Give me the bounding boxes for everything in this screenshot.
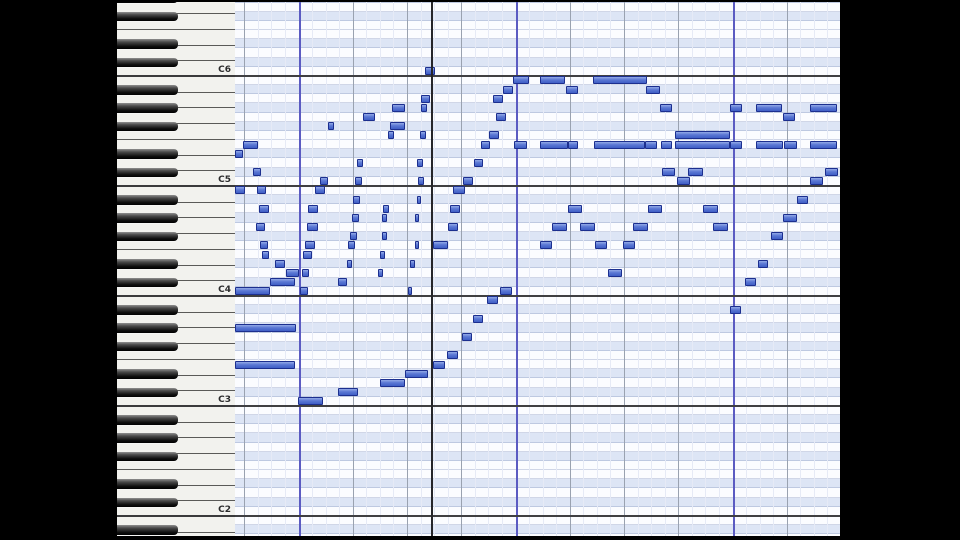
midi-note[interactable] — [675, 141, 730, 149]
midi-note[interactable] — [421, 95, 430, 103]
midi-note[interactable] — [417, 159, 423, 167]
midi-note[interactable] — [453, 186, 465, 194]
midi-note[interactable] — [810, 104, 837, 112]
midi-note[interactable] — [660, 104, 672, 112]
midi-note[interactable] — [338, 278, 347, 286]
midi-note[interactable] — [350, 232, 357, 240]
note-grid[interactable] — [235, 0, 840, 540]
octave-line — [235, 185, 840, 187]
bottom-edge — [0, 536, 960, 540]
midi-note[interactable] — [514, 141, 527, 149]
octave-label: C5 — [218, 176, 231, 185]
midi-note[interactable] — [235, 150, 243, 158]
midi-note[interactable] — [513, 76, 529, 84]
subbeat-line — [475, 0, 476, 540]
midi-note[interactable] — [382, 232, 387, 240]
subbeat-line — [773, 0, 774, 540]
subbeat-line — [760, 0, 761, 540]
midi-note[interactable] — [730, 141, 742, 149]
black-key[interactable] — [117, 278, 178, 288]
midi-note[interactable] — [300, 287, 308, 295]
midi-note[interactable] — [487, 296, 498, 304]
midi-note[interactable] — [645, 141, 657, 149]
black-key[interactable] — [117, 58, 178, 68]
midi-note[interactable] — [308, 205, 318, 213]
midi-note[interactable] — [338, 388, 358, 396]
midi-note[interactable] — [303, 251, 312, 259]
midi-note[interactable] — [730, 306, 741, 314]
midi-note[interactable] — [298, 397, 323, 405]
midi-note[interactable] — [275, 260, 285, 268]
midi-note[interactable] — [783, 214, 797, 222]
midi-note[interactable] — [703, 205, 718, 213]
midi-note[interactable] — [797, 196, 808, 204]
midi-note[interactable] — [474, 159, 483, 167]
subbeat-line — [827, 0, 828, 540]
midi-note[interactable] — [418, 177, 424, 185]
black-key[interactable] — [117, 122, 178, 132]
piano-roll-editor: C6C5C4C3C2 — [0, 0, 960, 540]
midi-note[interactable] — [566, 86, 578, 94]
midi-note[interactable] — [503, 86, 513, 94]
midi-note[interactable] — [463, 177, 473, 185]
subbeat-line — [719, 0, 720, 540]
midi-note[interactable] — [305, 241, 315, 249]
midi-note[interactable] — [320, 177, 328, 185]
midi-note[interactable] — [421, 104, 427, 112]
subbeat-line — [448, 0, 449, 540]
white-key-separator — [117, 515, 235, 517]
black-key[interactable] — [117, 213, 178, 223]
beat-line — [461, 0, 462, 540]
black-key[interactable] — [117, 305, 178, 315]
midi-note[interactable] — [580, 223, 595, 231]
black-key[interactable] — [117, 388, 178, 398]
midi-note[interactable] — [302, 269, 309, 277]
midi-note[interactable] — [594, 141, 645, 149]
midi-note[interactable] — [433, 361, 445, 369]
midi-note[interactable] — [810, 177, 823, 185]
midi-note[interactable] — [347, 260, 352, 268]
midi-note[interactable] — [756, 104, 782, 112]
subbeat-line — [258, 0, 259, 540]
midi-note[interactable] — [243, 141, 258, 149]
midi-note[interactable] — [540, 76, 565, 84]
white-key-separator — [117, 185, 235, 187]
midi-note[interactable] — [608, 269, 622, 277]
midi-note[interactable] — [661, 141, 672, 149]
white-key-separator — [117, 469, 235, 470]
midi-note[interactable] — [259, 205, 269, 213]
black-key[interactable] — [117, 103, 178, 113]
octave-label: C3 — [218, 396, 231, 405]
midi-note[interactable] — [405, 370, 428, 378]
midi-note[interactable] — [408, 287, 412, 295]
midi-note[interactable] — [646, 86, 660, 94]
midi-note[interactable] — [286, 269, 299, 277]
octave-line — [235, 295, 840, 297]
black-key[interactable] — [117, 498, 178, 508]
black-key[interactable] — [117, 259, 178, 269]
beat-line — [787, 0, 788, 540]
midi-note[interactable] — [493, 95, 503, 103]
midi-note[interactable] — [415, 214, 419, 222]
black-key[interactable] — [117, 342, 178, 352]
subbeat-line — [651, 0, 652, 540]
subbeat-line — [502, 0, 503, 540]
white-key-separator — [117, 359, 235, 360]
midi-note[interactable] — [257, 186, 266, 194]
midi-note[interactable] — [415, 241, 419, 249]
subbeat-line — [434, 0, 435, 540]
midi-note[interactable] — [481, 141, 490, 149]
white-key-separator — [117, 405, 235, 407]
midi-note[interactable] — [390, 122, 405, 130]
black-key[interactable] — [117, 452, 178, 462]
midi-note[interactable] — [420, 131, 426, 139]
white-key-separator — [117, 75, 235, 77]
subbeat-line — [271, 0, 272, 540]
letterbox-right — [840, 0, 960, 540]
midi-note[interactable] — [784, 141, 797, 149]
black-key[interactable] — [117, 479, 178, 489]
subbeat-line — [312, 0, 313, 540]
midi-note[interactable] — [382, 214, 387, 222]
black-key[interactable] — [117, 39, 178, 49]
black-key[interactable] — [117, 149, 178, 159]
octave-label: C2 — [218, 506, 231, 515]
edit-cursor[interactable] — [431, 0, 433, 540]
midi-note[interactable] — [383, 205, 389, 213]
midi-note[interactable] — [568, 141, 578, 149]
white-key-separator — [117, 29, 235, 30]
black-key[interactable] — [117, 369, 178, 379]
midi-note[interactable] — [825, 168, 838, 176]
subbeat-line — [488, 0, 489, 540]
midi-note[interactable] — [713, 223, 728, 231]
letterbox-left — [0, 0, 117, 540]
beat-line — [678, 0, 679, 540]
midi-note[interactable] — [355, 177, 362, 185]
midi-note[interactable] — [496, 113, 506, 121]
midi-note[interactable] — [357, 159, 363, 167]
black-key[interactable] — [117, 525, 178, 535]
midi-note[interactable] — [388, 131, 394, 139]
midi-note[interactable] — [378, 269, 383, 277]
midi-note[interactable] — [633, 223, 648, 231]
beat-line — [244, 0, 245, 540]
subbeat-line — [705, 0, 706, 540]
white-key-separator — [117, 295, 235, 297]
piano-keyboard[interactable]: C6C5C4C3C2 — [117, 0, 235, 540]
midi-note[interactable] — [348, 241, 355, 249]
subbeat-line — [746, 0, 747, 540]
midi-note[interactable] — [500, 287, 512, 295]
black-key[interactable] — [117, 415, 178, 425]
measure-line — [733, 0, 735, 540]
octave-label: C4 — [218, 286, 231, 295]
midi-note[interactable] — [758, 260, 768, 268]
midi-note[interactable] — [260, 241, 268, 249]
midi-note[interactable] — [363, 113, 375, 121]
subbeat-line — [665, 0, 666, 540]
midi-note[interactable] — [392, 104, 405, 112]
black-key[interactable] — [117, 323, 178, 333]
beat-line — [353, 0, 354, 540]
octave-line — [235, 75, 840, 77]
midi-note[interactable] — [235, 324, 296, 332]
midi-note[interactable] — [450, 205, 460, 213]
midi-note[interactable] — [328, 122, 334, 130]
midi-note[interactable] — [783, 113, 795, 121]
midi-note[interactable] — [675, 131, 730, 139]
midi-note[interactable] — [353, 196, 360, 204]
midi-note[interactable] — [688, 168, 703, 176]
midi-note[interactable] — [270, 278, 295, 286]
beat-line — [570, 0, 571, 540]
subbeat-line — [814, 0, 815, 540]
midi-note[interactable] — [256, 223, 265, 231]
subbeat-line — [393, 0, 394, 540]
midi-note[interactable] — [595, 241, 607, 249]
midi-note[interactable] — [433, 241, 448, 249]
midi-note[interactable] — [380, 251, 385, 259]
midi-note[interactable] — [425, 67, 435, 75]
midi-note[interactable] — [593, 76, 647, 84]
subbeat-line — [421, 0, 422, 540]
midi-note[interactable] — [745, 278, 756, 286]
midi-note[interactable] — [677, 177, 690, 185]
midi-note[interactable] — [307, 223, 318, 231]
midi-note[interactable] — [810, 141, 837, 149]
octave-label: C6 — [218, 66, 231, 75]
black-key[interactable] — [117, 232, 178, 242]
black-key[interactable] — [117, 195, 178, 205]
midi-note[interactable] — [262, 251, 269, 259]
midi-note[interactable] — [730, 104, 742, 112]
midi-note[interactable] — [410, 260, 415, 268]
midi-note[interactable] — [552, 223, 567, 231]
midi-note[interactable] — [771, 232, 783, 240]
subbeat-line — [692, 0, 693, 540]
midi-note[interactable] — [447, 351, 458, 359]
beat-line — [407, 0, 408, 540]
subbeat-line — [366, 0, 367, 540]
midi-note[interactable] — [380, 379, 405, 387]
midi-note[interactable] — [623, 241, 635, 249]
midi-note[interactable] — [662, 168, 675, 176]
midi-note[interactable] — [235, 287, 270, 295]
midi-note[interactable] — [352, 214, 359, 222]
midi-note[interactable] — [448, 223, 458, 231]
black-key[interactable] — [117, 12, 178, 22]
subbeat-line — [339, 0, 340, 540]
midi-note[interactable] — [756, 141, 783, 149]
midi-note[interactable] — [568, 205, 582, 213]
midi-note[interactable] — [417, 196, 421, 204]
subbeat-line — [583, 0, 584, 540]
white-key-separator — [117, 139, 235, 140]
octave-line — [235, 515, 840, 517]
black-key[interactable] — [117, 433, 178, 443]
black-key[interactable] — [117, 168, 178, 178]
midi-note[interactable] — [235, 361, 295, 369]
midi-note[interactable] — [473, 315, 483, 323]
midi-note[interactable] — [489, 131, 499, 139]
midi-note[interactable] — [540, 241, 552, 249]
midi-note[interactable] — [540, 141, 568, 149]
subbeat-line — [800, 0, 801, 540]
midi-note[interactable] — [253, 168, 261, 176]
midi-note[interactable] — [648, 205, 662, 213]
midi-note[interactable] — [462, 333, 472, 341]
top-edge — [0, 0, 960, 2]
black-key[interactable] — [117, 85, 178, 95]
midi-note[interactable] — [315, 186, 325, 194]
subbeat-line — [529, 0, 530, 540]
octave-line — [235, 405, 840, 407]
white-key-separator — [117, 249, 235, 250]
subbeat-line — [326, 0, 327, 540]
midi-note[interactable] — [235, 186, 245, 194]
